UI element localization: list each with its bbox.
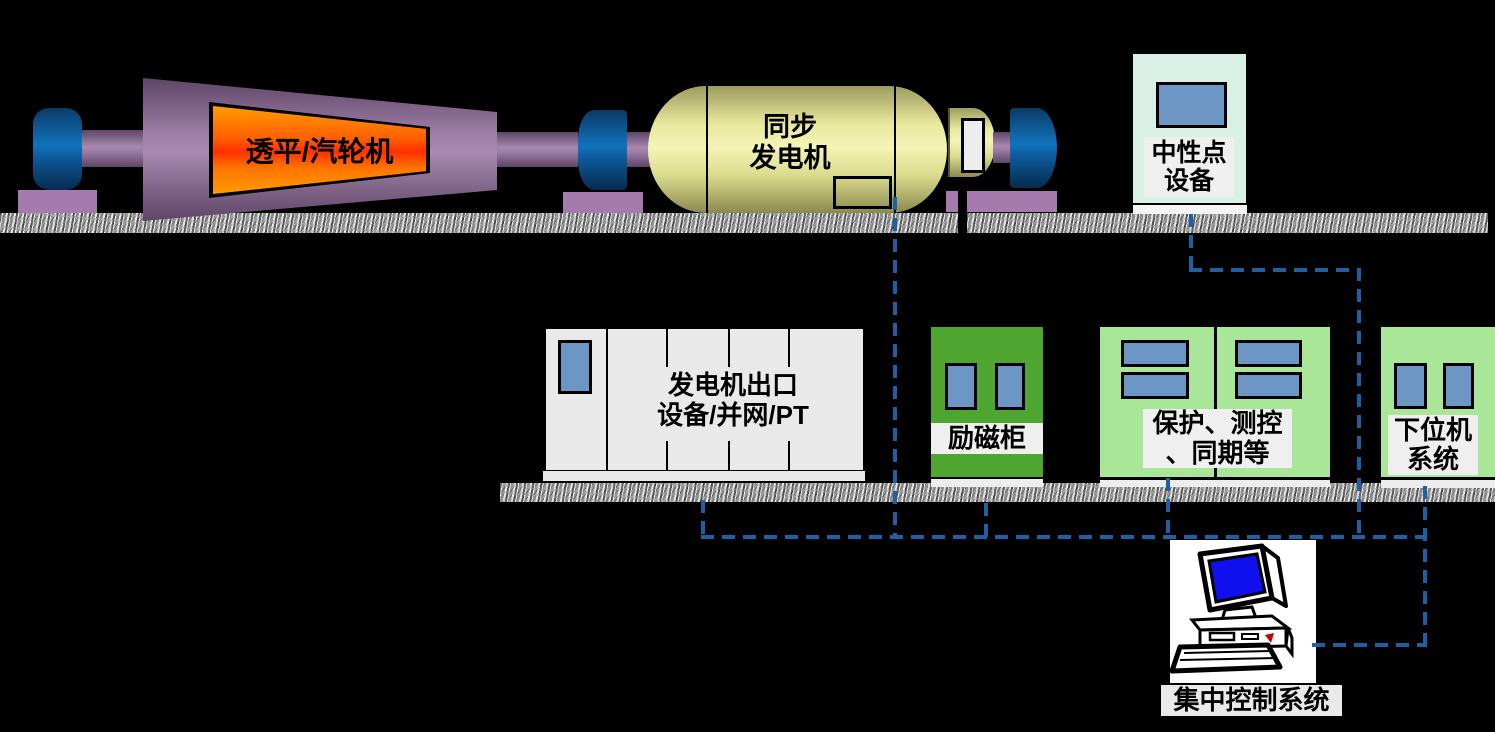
protection-cabinet: 保护、测控 、同期等	[1100, 327, 1330, 477]
outlet-divider-4b	[788, 441, 790, 470]
central-control-computer	[1170, 540, 1316, 683]
link-neutral-down	[1357, 268, 1361, 539]
protection-panel-3	[1235, 340, 1302, 367]
link-lower-computer-drop	[1423, 486, 1427, 647]
protection-plinth	[1100, 478, 1330, 487]
exciter-slot	[961, 118, 985, 173]
turbine-shaft-left	[82, 130, 143, 167]
protection-panel-4	[1235, 372, 1302, 399]
right-bearing	[1010, 108, 1057, 188]
lower-computer-label: 下位机 系统	[1388, 415, 1478, 475]
outlet-plinth	[543, 471, 865, 483]
link-protection-drop	[1166, 478, 1170, 539]
turbine-label: 透平/汽轮机	[209, 136, 430, 168]
desktop-computer-icon	[1170, 540, 1316, 683]
excitation-plinth	[931, 477, 1043, 487]
outlet-divider-4a	[788, 329, 790, 367]
left-bearing	[33, 108, 82, 190]
excitation-panel-2	[995, 363, 1025, 410]
turbine-shaft-mid	[497, 132, 578, 167]
outlet-divider-2b	[666, 441, 668, 470]
generator-shaft-right	[993, 132, 1010, 163]
right-pedestal-small	[946, 191, 958, 212]
outlet-divider-3a	[728, 329, 730, 367]
outlet-divider-2a	[666, 329, 668, 367]
mid-bearing-pedestal	[563, 192, 643, 213]
link-generator-drop	[893, 197, 897, 539]
outlet-divider-3b	[728, 441, 730, 470]
left-bearing-pedestal	[18, 190, 97, 213]
neutral-point-plinth	[1133, 203, 1247, 214]
mid-bearing	[578, 110, 627, 190]
generator-divider-2	[894, 86, 896, 213]
link-neutral-horizontal	[1189, 268, 1361, 272]
link-central-control	[1312, 643, 1427, 647]
lower-computer-panel-2	[1443, 363, 1474, 409]
lower-computer-panel-1	[1394, 363, 1427, 409]
neutral-point-panel	[1156, 82, 1227, 128]
outlet-label: 发电机出口 设备/并网/PT	[608, 371, 858, 431]
link-neutral-drop	[1189, 214, 1193, 272]
right-bearing-pedestal	[967, 191, 1057, 212]
outlet-door-panel	[558, 340, 592, 394]
link-bus	[701, 535, 1427, 539]
neutral-point-cabinet: 中性点 设备	[1133, 54, 1246, 203]
excitation-cabinet: 励磁柜	[931, 327, 1043, 477]
lower-computer-plinth	[1381, 478, 1495, 488]
turbine-cone: 透平/汽轮机	[143, 78, 497, 221]
central-control-label: 集中控制系统	[1161, 685, 1342, 716]
generator-label: 同步 发电机	[695, 112, 885, 174]
upper-foundation-right	[967, 213, 1488, 233]
excitation-panel-1	[945, 363, 977, 410]
lower-computer-cabinet: 下位机 系统	[1381, 327, 1495, 477]
link-outlet-drop	[701, 500, 705, 539]
protection-panel-1	[1121, 340, 1189, 367]
power-plant-diagram: 透平/汽轮机 同步 发电机 中性点 设备 发电机出口	[0, 0, 1495, 732]
link-excitation-drop	[984, 503, 988, 539]
protection-panel-2	[1121, 372, 1189, 399]
generator-terminal-box	[833, 176, 892, 209]
excitation-label: 励磁柜	[931, 423, 1043, 454]
protection-label: 保护、测控 、同期等	[1143, 409, 1292, 468]
outlet-cabinet: 发电机出口 设备/并网/PT	[543, 326, 866, 473]
neutral-point-label: 中性点 设备	[1144, 137, 1234, 197]
